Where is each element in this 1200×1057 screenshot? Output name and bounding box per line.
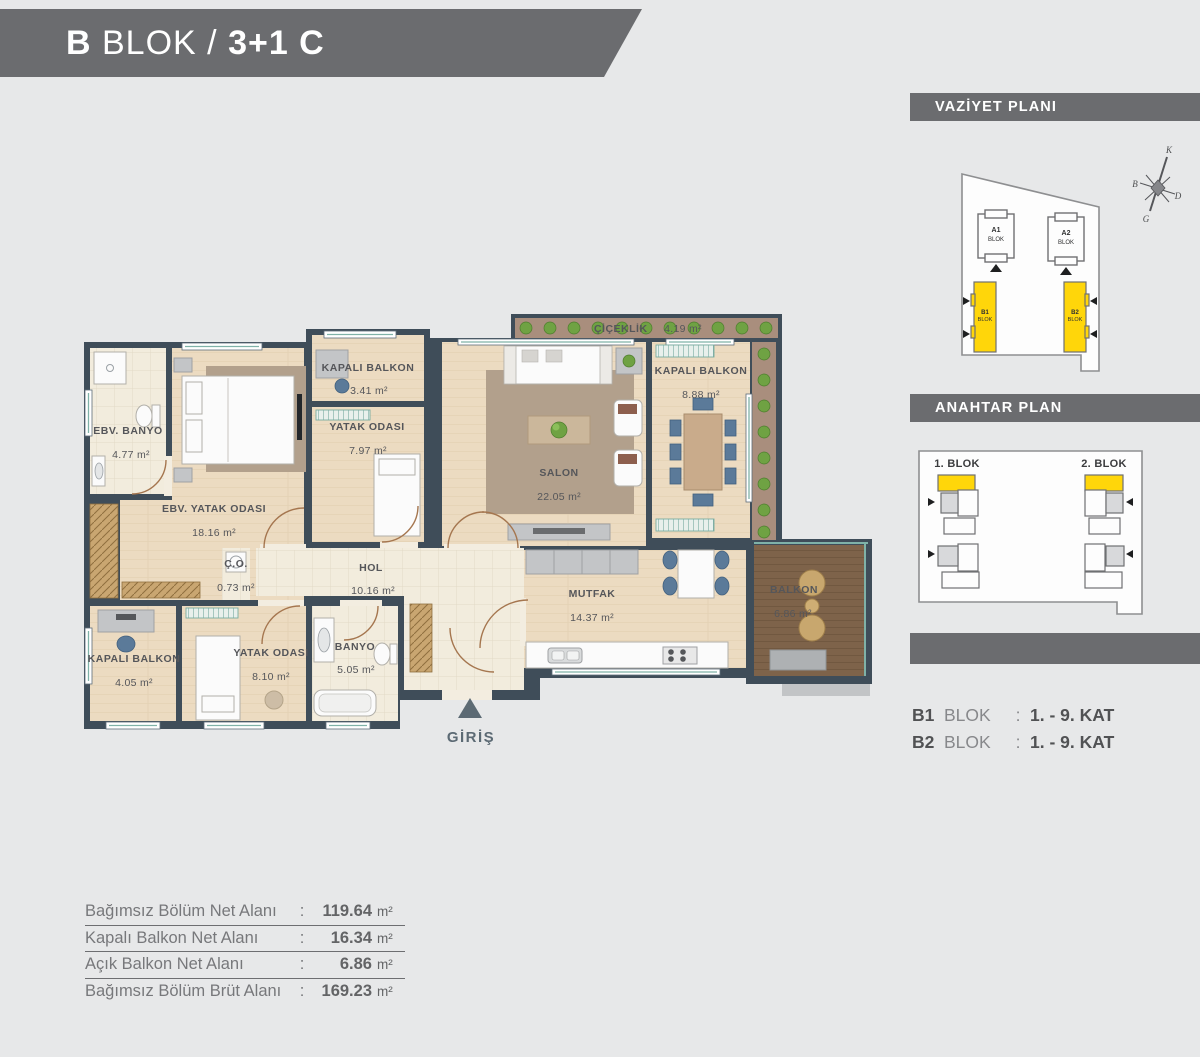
- room-mutfak-area: 14.37 m²: [570, 612, 614, 624]
- key-plan-block1-label: 1. BLOK: [934, 458, 980, 470]
- room-balkon-area: 6.86 m²: [774, 608, 812, 620]
- svg-text:BLOK: BLOK: [988, 237, 1004, 243]
- svg-text:G: G: [1143, 214, 1150, 224]
- page-title-middle: BLOK /: [92, 24, 229, 63]
- room-banyo-label: BANYO: [335, 641, 375, 653]
- room-kb-alt-area: 4.05 m²: [115, 677, 153, 689]
- room-hol-label: HOL: [359, 562, 383, 574]
- areas-table: Bağımsız Bölüm Net Alanı : 119.64 m² Kap…: [85, 899, 405, 1004]
- page-title-unit: 3+1 C: [228, 24, 325, 63]
- room-banyo-area: 5.05 m²: [337, 664, 375, 676]
- key-plan-unit-highlight: [938, 475, 975, 491]
- room-mutfak-label: MUTFAK: [569, 588, 616, 600]
- svg-text:A2: A2: [1062, 230, 1071, 237]
- room-salon-area: 22.05 m²: [537, 491, 581, 503]
- divider-bar: [910, 633, 1200, 664]
- room-yatak-ust-label: YATAK ODASI: [329, 421, 404, 433]
- key-plan-block2-label: 2. BLOK: [1081, 458, 1127, 470]
- page-title-block: B: [66, 24, 92, 63]
- areas-row-kapali-balkon: Kapalı Balkon Net Alanı : 16.34 m²: [85, 926, 405, 953]
- room-kb-ust-area: 3.41 m²: [350, 385, 388, 397]
- entrance-marker: GİRİŞ: [447, 698, 495, 746]
- svg-text:BLOK: BLOK: [978, 317, 993, 323]
- svg-text:A1: A1: [992, 227, 1001, 234]
- svg-text:D: D: [1174, 191, 1182, 201]
- room-balkon-label: BALKON: [770, 584, 818, 596]
- entrance-label: GİRİŞ: [447, 729, 495, 746]
- key-plan-header: ANAHTAR PLAN: [910, 394, 1200, 422]
- room-co-area: 0.73 m²: [217, 582, 255, 594]
- room-yatak-alt-area: 8.10 m²: [252, 671, 290, 683]
- room-kb-sag-label: KAPALI BALKON: [655, 365, 748, 377]
- svg-text:BLOK: BLOK: [1068, 317, 1083, 323]
- room-salon-label: SALON: [539, 467, 578, 479]
- room-hol-area: 10.16 m²: [351, 585, 395, 597]
- svg-text:B1: B1: [981, 310, 989, 316]
- floor-plan: EBV. BANYO 4.77 m² EBV. YATAK ODASI 18.1…: [78, 298, 890, 768]
- room-ebv-banyo-label: EBV. BANYO: [93, 425, 162, 437]
- svg-text:B2: B2: [1071, 310, 1079, 316]
- room-kb-ust-label: KAPALI BALKON: [322, 362, 415, 374]
- svg-text:K: K: [1165, 145, 1173, 155]
- room-kb-sag-area: 8.88 m²: [682, 389, 720, 401]
- page-title-banner: B BLOK / 3+1 C: [0, 9, 642, 77]
- room-ebv-yatak-label: EBV. YATAK ODASI: [162, 503, 266, 515]
- floor-range-info: B1BLOK:1. - 9. KAT B2BLOK:1. - 9. KAT: [912, 702, 1114, 756]
- areas-row-brut: Bağımsız Bölüm Brüt Alanı : 169.23 m²: [85, 979, 405, 1005]
- areas-row-acik-balkon: Açık Balkon Net Alanı : 6.86 m²: [85, 952, 405, 979]
- site-plan-header: VAZİYET PLANI: [910, 93, 1200, 121]
- svg-text:B: B: [1132, 179, 1138, 189]
- compass-icon: K B D G: [1132, 145, 1182, 224]
- svg-text:BLOK: BLOK: [1058, 240, 1074, 246]
- entry-step: [782, 684, 870, 696]
- key-plan-unit-highlight-2: [1085, 475, 1123, 491]
- key-plan-title: ANAHTAR PLAN: [935, 400, 1062, 416]
- room-yatak-alt-label: YATAK ODASI: [233, 647, 308, 659]
- room-ebv-yatak-area: 18.16 m²: [192, 527, 236, 539]
- room-co-label: Ç.O.: [224, 558, 248, 570]
- areas-row-net: Bağımsız Bölüm Net Alanı : 119.64 m²: [85, 899, 405, 926]
- floor-range-b1: B1BLOK:1. - 9. KAT: [912, 702, 1114, 729]
- entrance-arrow-icon: [458, 698, 482, 718]
- room-kb-alt-label: KAPALI BALKON: [88, 653, 181, 665]
- floor-range-b2: B2BLOK:1. - 9. KAT: [912, 729, 1114, 756]
- site-plan-diagram: A1 BLOK A2 BLOK B1 BLOK B2: [905, 125, 1200, 390]
- room-yatak-ust-area: 7.97 m²: [349, 445, 387, 457]
- key-plan-diagram: 1. BLOK 2. BLOK: [905, 440, 1200, 630]
- site-plan-title: VAZİYET PLANI: [935, 99, 1057, 115]
- room-ebv-banyo-area: 4.77 m²: [112, 449, 150, 461]
